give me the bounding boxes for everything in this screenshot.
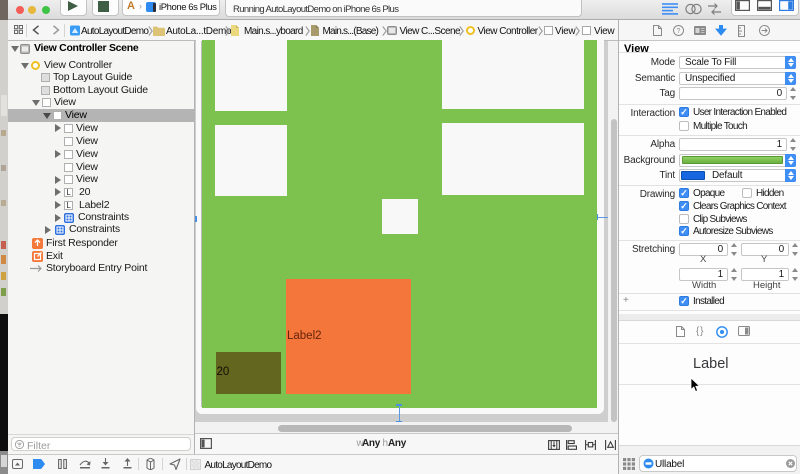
svg-text:?: ?: [677, 28, 681, 35]
